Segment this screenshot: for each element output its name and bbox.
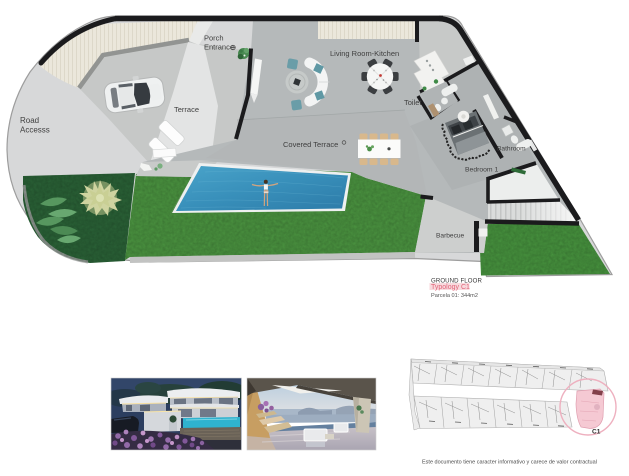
svg-text:Typology C1: Typology C1 xyxy=(431,284,470,291)
svg-text:Porch: Porch xyxy=(204,34,224,43)
svg-text:Bedroom 1: Bedroom 1 xyxy=(465,167,498,174)
svg-text:Bathroom: Bathroom xyxy=(497,146,526,153)
svg-text:Toilet: Toilet xyxy=(404,98,422,107)
svg-text:Barbecue: Barbecue xyxy=(436,233,465,240)
svg-text:Entrance: Entrance xyxy=(204,43,234,52)
svg-text:Terrace: Terrace xyxy=(174,105,199,114)
svg-text:Parcela 01: 344m2: Parcela 01: 344m2 xyxy=(431,293,478,299)
svg-text:C1: C1 xyxy=(592,429,601,436)
svg-text:Living Room-Kitchen: Living Room-Kitchen xyxy=(330,49,399,58)
svg-text:Accesss: Accesss xyxy=(20,126,50,135)
svg-text:Este documento tiene caracter: Este documento tiene caracter informativ… xyxy=(422,460,597,466)
svg-text:Covered Terrace: Covered Terrace xyxy=(283,140,338,149)
svg-text:Road: Road xyxy=(20,116,39,125)
